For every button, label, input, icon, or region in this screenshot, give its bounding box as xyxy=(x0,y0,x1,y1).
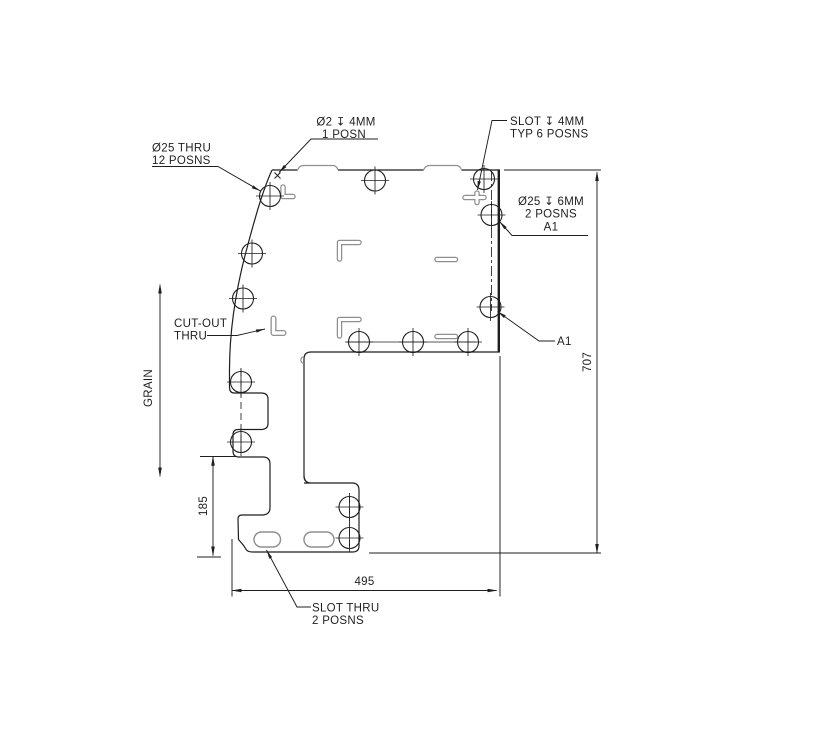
annotation-dia25cb-line3: A1 xyxy=(544,222,559,234)
annotation-cutout-line2: THRU xyxy=(174,331,207,343)
annotation-slot-line2: TYP 6 POSNS xyxy=(510,129,589,141)
annotation-dia25thru-line2: 12 POSNS xyxy=(152,155,211,167)
annotation-slot-line1: SLOT ↧ 4MM xyxy=(510,116,584,128)
annotation-dia2-line1: Ø2 ↧ 4MM xyxy=(316,117,375,129)
drawing-page: Ø2 ↧ 4MM 1 POSN Ø25 THRU 12 POSNS SLOT ↧… xyxy=(0,0,840,750)
dim-495-text: 495 xyxy=(354,576,374,588)
engineering-drawing: Ø2 ↧ 4MM 1 POSN Ø25 THRU 12 POSNS SLOT ↧… xyxy=(0,0,840,750)
annotation-dia25cb-line2: 2 POSNS xyxy=(525,209,577,221)
annotation-dia25thru-line1: Ø25 THRU xyxy=(152,143,211,155)
drawing-background xyxy=(0,0,840,750)
annotation-dia25cb-line1: Ø25 ↧ 6MM xyxy=(518,196,584,208)
dim-185-text: 185 xyxy=(198,496,210,516)
annotation-cutout-line1: CUT-OUT xyxy=(174,318,227,330)
annotation-a1-ref: A1 xyxy=(557,336,572,348)
dim-707-text: 707 xyxy=(582,352,594,372)
annotation-dia2-line2: 1 POSN xyxy=(322,129,366,141)
annotation-slotthru-line2: 2 POSNS xyxy=(312,615,364,627)
grain-label: GRAIN xyxy=(143,369,155,407)
annotation-slotthru-line1: SLOT THRU xyxy=(312,603,379,615)
